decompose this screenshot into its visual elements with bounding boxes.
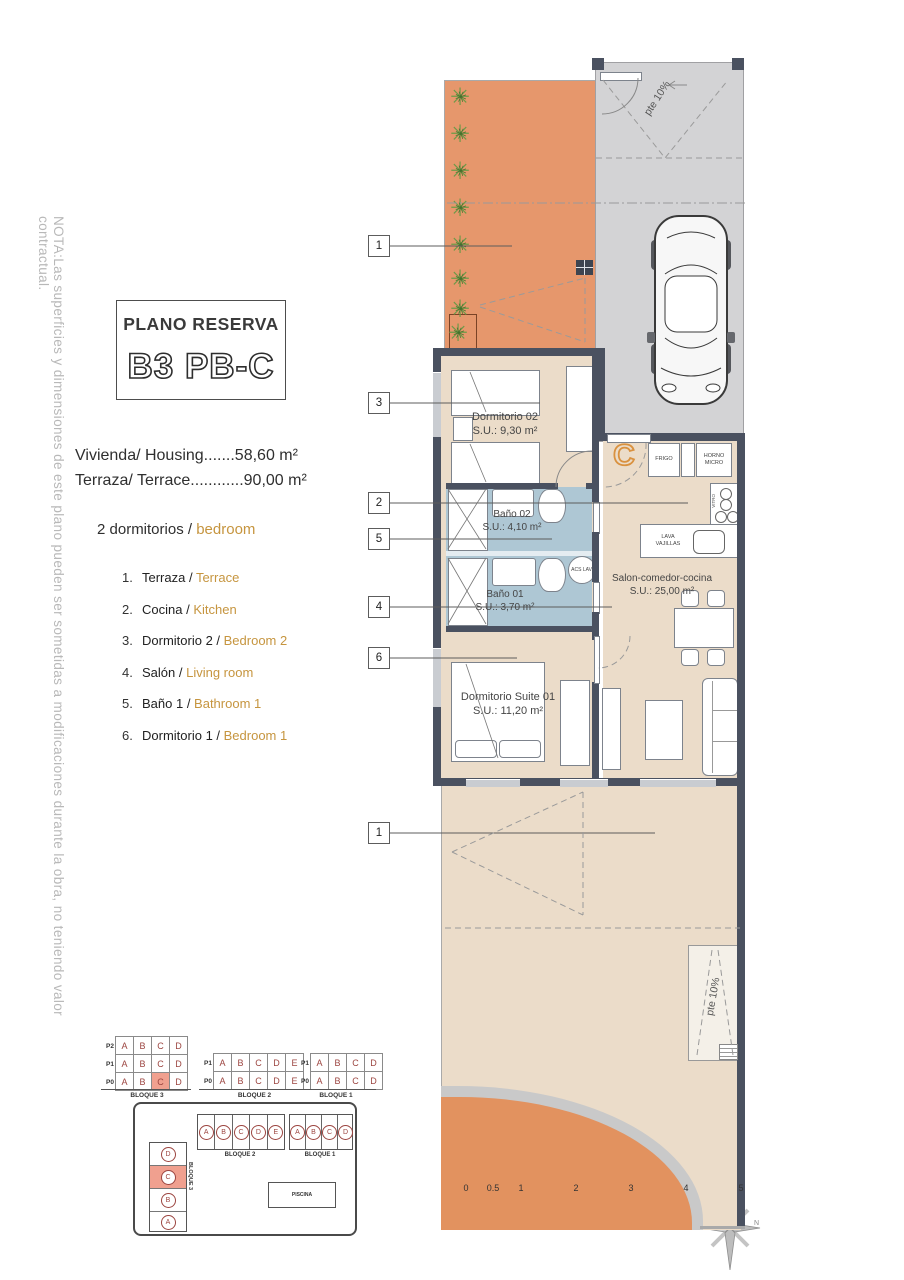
dining-table xyxy=(674,608,734,648)
hob: VITRO xyxy=(710,483,740,527)
unit-cell: B xyxy=(328,1053,347,1072)
legend-item: 3.Dormitorio 2 / Bedroom 2 xyxy=(122,633,287,648)
scale-tick: 1 xyxy=(513,1183,529,1193)
unit-cell: A xyxy=(213,1071,232,1090)
site-bay: C xyxy=(232,1115,249,1149)
plant-icon: ✳✳ xyxy=(448,320,476,348)
unit-table-block3: P2 ABCD P1 ABCD P0 ABCD xyxy=(101,1037,188,1091)
unit-cell: A xyxy=(213,1053,232,1072)
site-block3: D C B A xyxy=(149,1142,187,1232)
legend-en: Bathroom 1 xyxy=(194,696,261,711)
unit-cell: D xyxy=(364,1071,383,1090)
floor-label: P1 xyxy=(296,1054,311,1072)
unit-cell: D xyxy=(169,1036,188,1055)
unit-letter: C xyxy=(606,436,642,475)
callout-kitchen: 2 xyxy=(368,492,390,514)
title-box: PLANO RESERVA B3 PB-C xyxy=(116,300,286,400)
room-area: S.U.: 25,00 m² xyxy=(606,585,718,598)
pillow xyxy=(499,740,541,758)
oven-micro: HORNO MICRO xyxy=(696,443,732,477)
unit-table-block1: P1 ABCD P0 ABCD xyxy=(296,1054,383,1090)
bedrooms-es: 2 dormitorios / xyxy=(97,521,196,538)
site-bay: D xyxy=(249,1115,266,1149)
plan-title: PLANO RESERVA xyxy=(117,314,285,335)
scale-tick: 0 xyxy=(458,1183,474,1193)
wall-segment xyxy=(592,356,599,502)
legend-en: Bedroom 1 xyxy=(224,728,288,743)
legend-num: 2. xyxy=(122,602,142,617)
kitchen-counter: LAVA VAJILLAS xyxy=(640,524,740,558)
car-icon xyxy=(645,212,737,408)
legend-es: Dormitorio 1 / xyxy=(142,728,224,743)
coffee-table xyxy=(645,700,683,760)
bedrooms-line: 2 dormitorios / bedroom xyxy=(97,521,255,538)
unit-cell: D xyxy=(267,1071,286,1090)
wardrobe xyxy=(566,366,593,452)
room-name: Dormitorio Suite 01 xyxy=(452,690,564,704)
door-leaf xyxy=(593,582,600,614)
legend-num: 4. xyxy=(122,665,142,680)
unit-cell: D xyxy=(364,1053,383,1072)
dishwasher-label: LAVA VAJILLAS xyxy=(649,534,687,548)
legend-en: Bedroom 2 xyxy=(224,633,288,648)
bottom-edge xyxy=(700,1226,745,1229)
callout-bath1: 5 xyxy=(368,528,390,550)
terrace-window-grid xyxy=(576,260,593,275)
site-map: D C B A BLOQUE 3 A B C D E BLOQUE 2 A B … xyxy=(133,1102,357,1236)
chair xyxy=(707,649,725,666)
bath-divider xyxy=(446,551,592,556)
floor-label: P2 xyxy=(101,1037,116,1055)
room-label-suite: Dormitorio Suite 01 S.U.: 11,20 m² xyxy=(452,690,564,719)
sink xyxy=(492,558,536,586)
room-name: Baño 02 xyxy=(462,508,562,521)
legend-item: 2.Cocina / Kitchen xyxy=(122,602,287,617)
room-label-dorm2: Dormitorio 02 S.U.: 9,30 m² xyxy=(450,410,560,439)
site-unit: A xyxy=(199,1125,214,1140)
unit-cell: D xyxy=(169,1054,188,1073)
wall-segment xyxy=(433,348,605,356)
wall-segment xyxy=(592,58,604,70)
legend-es: Baño 1 / xyxy=(142,696,194,711)
legend-num: 3. xyxy=(122,633,142,648)
site-bay: D xyxy=(337,1115,353,1149)
window xyxy=(466,779,520,787)
unit-cell: B xyxy=(231,1053,250,1072)
floor-label: P1 xyxy=(101,1055,116,1073)
site-unit: A xyxy=(161,1215,176,1230)
door-leaf xyxy=(593,502,600,534)
table-caption: BLOQUE 3 xyxy=(113,1092,181,1099)
site-unit: B xyxy=(216,1125,231,1140)
legend-en: Living room xyxy=(186,665,253,680)
site-block1-caption: BLOQUE 1 xyxy=(289,1152,351,1158)
unit-cell: C xyxy=(249,1053,268,1072)
unit-cell: C xyxy=(346,1053,365,1072)
legend-en: Terrace xyxy=(196,570,239,585)
legend-num: 5. xyxy=(122,696,142,711)
plant-icon: ✳✳ xyxy=(450,158,478,186)
unit-cell: B xyxy=(133,1036,152,1055)
pillow xyxy=(455,740,497,758)
callout-salon: 4 xyxy=(368,596,390,618)
callout-terrace-bottom: 1 xyxy=(368,822,390,844)
scale-tick: 4 xyxy=(678,1183,694,1193)
room-name: Baño 01 xyxy=(455,588,555,601)
surface-terrace: Terraza/ Terrace............90,00 m² xyxy=(75,472,307,490)
callout-terrace-top: 1 xyxy=(368,235,390,257)
window xyxy=(433,372,441,437)
plant-icon: ✳✳ xyxy=(450,195,478,223)
scale-tick: 2 xyxy=(568,1183,584,1193)
toilet xyxy=(538,558,566,592)
table-baseline xyxy=(101,1089,191,1090)
unit-cell: D xyxy=(267,1053,286,1072)
unit-cell: A xyxy=(115,1054,134,1073)
site-unit: C xyxy=(322,1125,337,1140)
bedrooms-en: bedroom xyxy=(196,521,255,538)
unit-cell: A xyxy=(115,1036,134,1055)
legend-num: 6. xyxy=(122,728,142,743)
legend-es: Salón / xyxy=(142,665,186,680)
legend-item: 5.Baño 1 / Bathroom 1 xyxy=(122,696,287,711)
room-area: S.U.: 11,20 m² xyxy=(452,704,564,718)
site-bay: B xyxy=(305,1115,321,1149)
site-unit: D xyxy=(338,1125,353,1140)
window xyxy=(560,779,608,787)
room-label-bath1: Baño 01 S.U.: 3,70 m² xyxy=(455,588,555,614)
unit-cell: A xyxy=(310,1053,329,1072)
sofa xyxy=(702,678,738,776)
room-label-salon: Salon-comedor-cocina S.U.: 25,00 m² xyxy=(606,572,718,598)
callout-bedroom1: 6 xyxy=(368,647,390,669)
legend-item: 4.Salón / Living room xyxy=(122,665,287,680)
disclaimer-note: NOTA:Las superficies y dimensiones de es… xyxy=(36,216,66,1086)
site-bay: A xyxy=(290,1115,305,1149)
site-block1: A B C D xyxy=(289,1114,353,1150)
surface-housing: Vivienda/ Housing.......58,60 m² xyxy=(75,447,298,465)
plant-icon: ✳✳ xyxy=(450,232,478,260)
unit-cell: C xyxy=(249,1071,268,1090)
wall-segment xyxy=(446,483,558,489)
table-baseline xyxy=(199,1089,296,1090)
unit-table-block2: P1 ABCDE P0 ABCDE xyxy=(199,1054,304,1090)
room-area: S.U.: 3,70 m² xyxy=(455,601,555,614)
wall-segment xyxy=(592,682,599,782)
legend-es: Terraza / xyxy=(142,570,196,585)
site-unit-highlight-row: C xyxy=(150,1166,186,1189)
site-unit: B xyxy=(161,1193,176,1208)
legend-item: 6.Dormitorio 1 / Bedroom 1 xyxy=(122,728,287,743)
window xyxy=(640,779,716,787)
wall-segment xyxy=(446,626,592,632)
chair xyxy=(681,649,699,666)
site-block2: A B C D E xyxy=(197,1114,285,1150)
floor-label: P1 xyxy=(199,1054,214,1072)
hob-label: VITRO xyxy=(711,494,717,508)
wall-segment xyxy=(592,532,599,582)
site-block2-caption: BLOQUE 2 xyxy=(197,1152,283,1158)
wardrobe xyxy=(560,680,590,766)
site-unit: D xyxy=(251,1125,266,1140)
floor-label: P0 xyxy=(296,1072,311,1090)
site-unit: D xyxy=(161,1147,176,1162)
compass-north-label: N xyxy=(754,1220,759,1227)
scale-tick: 3 xyxy=(623,1183,639,1193)
room-area: S.U.: 9,30 m² xyxy=(450,424,560,438)
unit-cell: B xyxy=(328,1071,347,1090)
site-pool: PISCINA xyxy=(268,1182,336,1208)
wall-segment xyxy=(737,433,745,1228)
site-bay: B xyxy=(214,1115,231,1149)
sideboard xyxy=(602,688,621,770)
room-area: S.U.: 4,10 m² xyxy=(462,521,562,534)
legend-en: Kitchen xyxy=(193,602,236,617)
legend-num: 1. xyxy=(122,570,142,585)
plant-icon: ✳✳ xyxy=(450,84,478,112)
table-caption: BLOQUE 2 xyxy=(212,1092,297,1099)
unit-cell: A xyxy=(310,1071,329,1090)
plant-icon: ✳✳ xyxy=(450,266,478,294)
table-baseline xyxy=(296,1089,376,1090)
site-unit: A xyxy=(290,1125,305,1140)
legend-es: Dormitorio 2 / xyxy=(142,633,224,648)
unit-cell: C xyxy=(151,1054,170,1073)
unit-code: B3 PB-C xyxy=(117,347,285,387)
room-name: Salon-comedor-cocina xyxy=(606,572,718,585)
site-unit: C xyxy=(161,1170,176,1185)
stairs xyxy=(719,1044,738,1060)
legend-item: 1.Terraza / Terrace xyxy=(122,570,287,585)
floor-label: P0 xyxy=(199,1072,214,1090)
callout-bedroom2: 3 xyxy=(368,392,390,414)
site-unit: E xyxy=(268,1125,283,1140)
window xyxy=(433,648,441,707)
unit-cell: B xyxy=(133,1054,152,1073)
garage-door-leaf xyxy=(600,72,642,81)
site-block3-caption: BLOQUE 3 xyxy=(187,1162,193,1190)
floor-plan-sheet: NOTA:Las superficies y dimensiones de es… xyxy=(0,0,904,1280)
scale-tick: 0.5 xyxy=(485,1183,501,1193)
unit-cell: B xyxy=(231,1071,250,1090)
pool-label: PISCINA xyxy=(292,1192,312,1198)
plant-icon: ✳✳ xyxy=(450,121,478,149)
legend-list: 1.Terraza / Terrace 2.Cocina / Kitchen 3… xyxy=(122,570,287,743)
kitchen-column xyxy=(681,443,695,477)
door-leaf xyxy=(594,636,600,684)
site-bay: C xyxy=(321,1115,337,1149)
table-caption: BLOQUE 1 xyxy=(301,1092,371,1099)
unit-cell: C xyxy=(346,1071,365,1090)
unit-cell: C xyxy=(151,1036,170,1055)
bed-single xyxy=(451,442,540,486)
fridge: FRIGO xyxy=(648,443,680,477)
site-bay: A xyxy=(198,1115,214,1149)
site-bay: E xyxy=(267,1115,284,1149)
site-unit: C xyxy=(234,1125,249,1140)
wall-segment xyxy=(732,58,744,70)
room-label-bath2: Baño 02 S.U.: 4,10 m² xyxy=(462,508,562,534)
site-unit: B xyxy=(306,1125,321,1140)
room-name: Dormitorio 02 xyxy=(450,410,560,424)
legend-es: Cocina / xyxy=(142,602,193,617)
scale-tick: 5 xyxy=(733,1183,749,1193)
